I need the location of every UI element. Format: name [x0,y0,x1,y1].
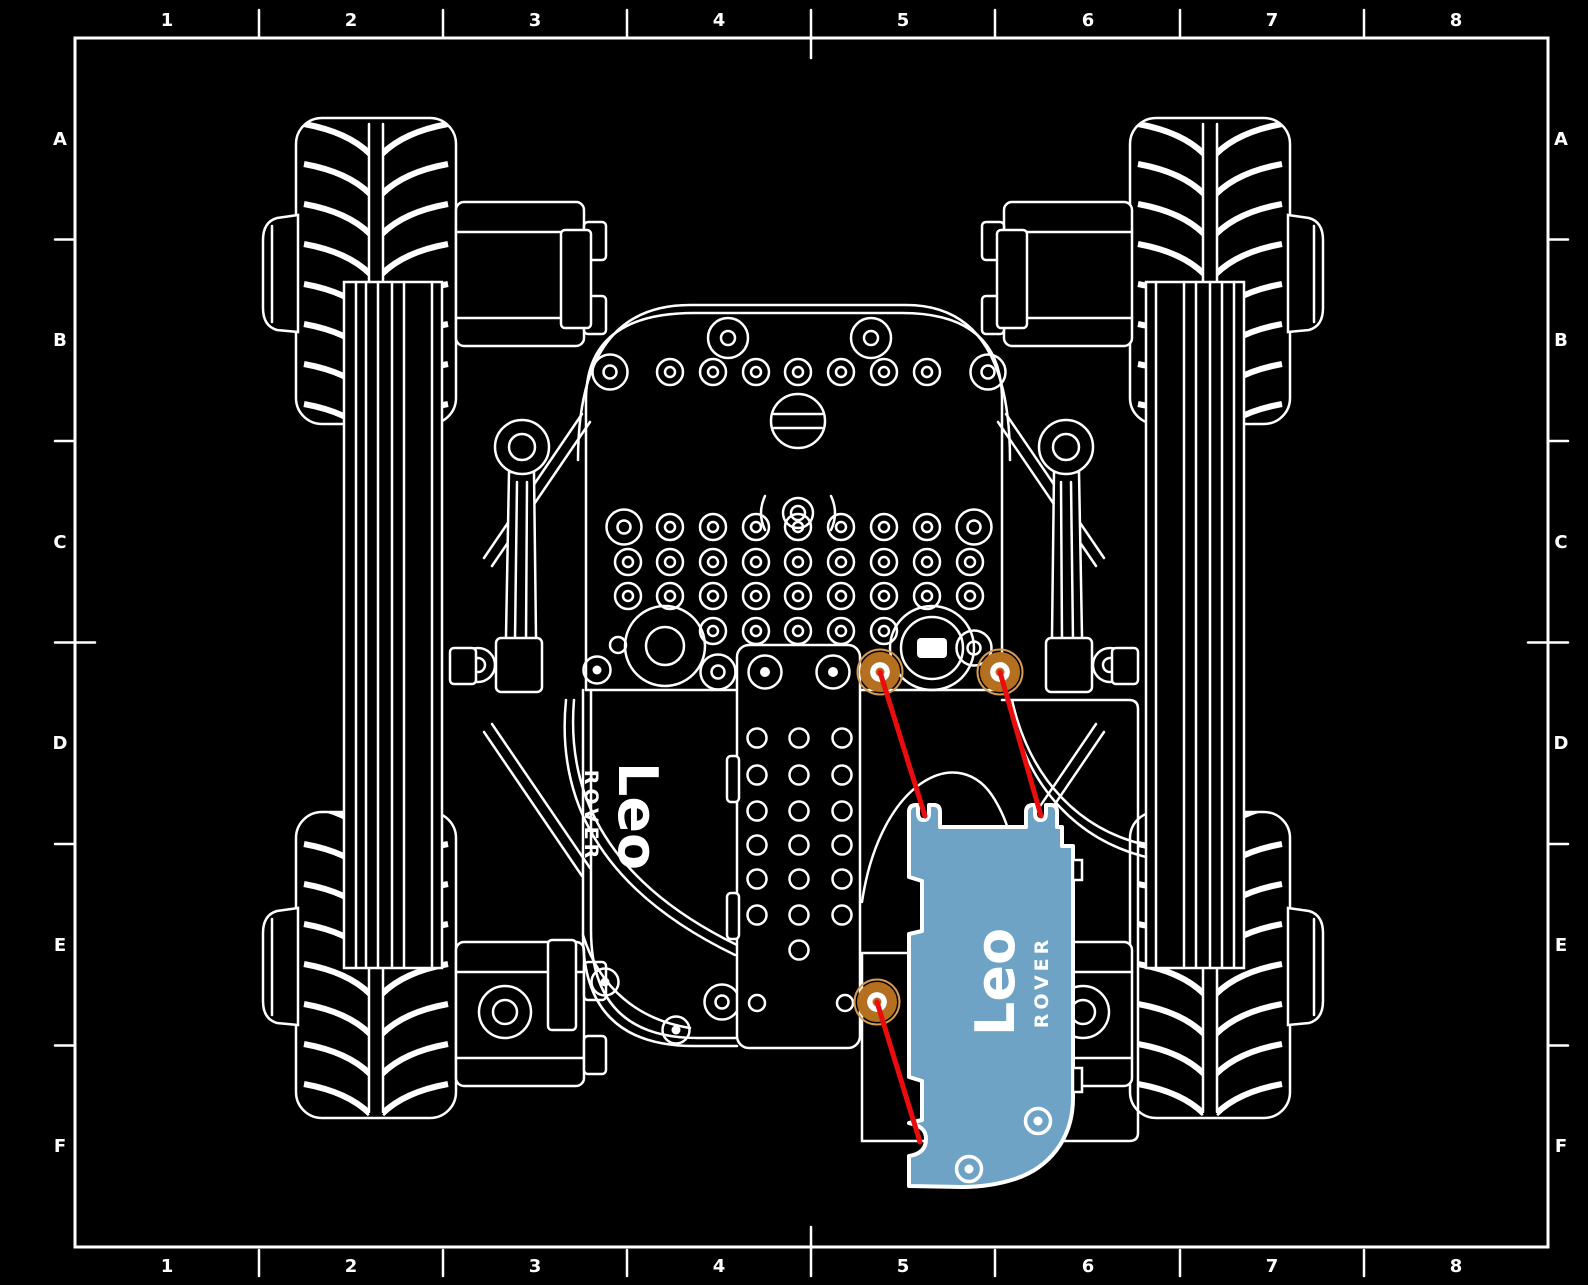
svg-text:7: 7 [1266,1256,1279,1277]
leader-line [1000,672,1041,816]
svg-text:2: 2 [345,10,358,31]
svg-text:4: 4 [713,1256,726,1277]
drawing-frame: 1 2 3 4 5 6 7 8 1 2 3 4 5 6 7 8 A B C D … [53,10,1569,1277]
body-logo-name: Leo [606,762,669,870]
rear-left-pivot [479,986,531,1038]
svg-text:8: 8 [1450,1256,1463,1277]
slotted-screw [771,394,825,448]
svg-text:1: 1 [161,1256,174,1277]
svg-text:E: E [1555,935,1567,956]
battery-plate [727,645,860,1048]
plate-holes [593,318,1006,690]
bearing-left [584,606,706,686]
frame-ticks-bottom [259,1227,1364,1276]
svg-text:2: 2 [345,1256,358,1277]
svg-text:A: A [1554,129,1568,150]
svg-text:6: 6 [1082,1256,1095,1277]
frame-ticks-top [259,10,1364,58]
main-mounting-plate [584,313,1006,690]
svg-text:8: 8 [1450,10,1463,31]
svg-text:B: B [53,330,67,351]
right-rail [1146,282,1244,968]
svg-text:4: 4 [713,10,726,31]
svg-text:A: A [53,129,67,150]
highlighted-cover-part: Leo ROVER [909,805,1082,1187]
body-logo: Leo ROVER [580,762,669,870]
body-logo-sub: ROVER [580,770,602,863]
svg-text:B: B [1554,330,1568,351]
leader-line [880,672,925,816]
cover-logo-sub: ROVER [1031,936,1053,1029]
svg-text:D: D [53,733,68,754]
left-rail [344,282,442,968]
cover-logo: Leo ROVER [964,928,1053,1036]
svg-text:5: 5 [897,1256,910,1277]
assembly-instruction-page: Leo ROVER Leo ROVER [0,0,1588,1285]
svg-text:1: 1 [161,10,174,31]
svg-text:F: F [54,1136,66,1157]
svg-text:3: 3 [529,1256,542,1277]
svg-text:C: C [53,532,66,553]
technical-drawing-canvas: Leo ROVER Leo ROVER [0,0,1588,1285]
svg-text:7: 7 [1266,10,1279,31]
svg-text:D: D [1554,733,1569,754]
svg-text:E: E [54,935,66,956]
svg-text:5: 5 [897,10,910,31]
svg-text:F: F [1555,1136,1567,1157]
svg-text:3: 3 [529,10,542,31]
cover-logo-name: Leo [964,928,1027,1036]
svg-text:6: 6 [1082,10,1095,31]
svg-text:C: C [1554,532,1567,553]
rover-top-view-drawing: Leo ROVER [263,118,1323,1141]
